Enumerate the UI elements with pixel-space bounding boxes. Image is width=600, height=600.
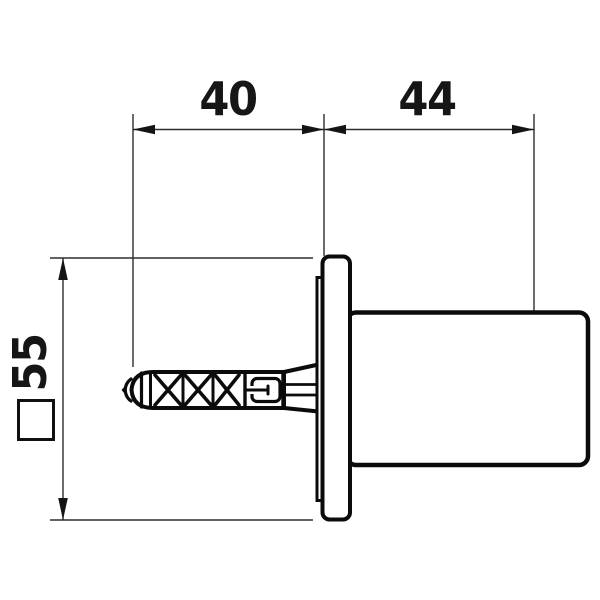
cylinder-body-outline bbox=[347, 313, 588, 466]
flange-plate-outline bbox=[323, 257, 351, 520]
drawing-linework bbox=[0, 0, 600, 600]
arrow-right-icon bbox=[512, 125, 534, 135]
arrow-left-icon bbox=[133, 125, 155, 135]
anchor-flare bbox=[283, 365, 319, 412]
square-symbol-icon bbox=[17, 399, 55, 441]
arrow-down-icon bbox=[58, 498, 68, 520]
anchor-tip bbox=[122, 386, 126, 394]
arrow-up-icon bbox=[58, 258, 68, 280]
dimension-label-55: 55 bbox=[7, 316, 55, 410]
dimension-label-44: 44 bbox=[380, 76, 474, 122]
wall-anchor-outline bbox=[122, 365, 319, 412]
dimension-label-40: 40 bbox=[181, 76, 275, 122]
technical-drawing-canvas: 40 44 55 bbox=[0, 0, 600, 600]
arrow-left-icon bbox=[324, 125, 346, 135]
arrow-right-icon bbox=[302, 125, 324, 135]
